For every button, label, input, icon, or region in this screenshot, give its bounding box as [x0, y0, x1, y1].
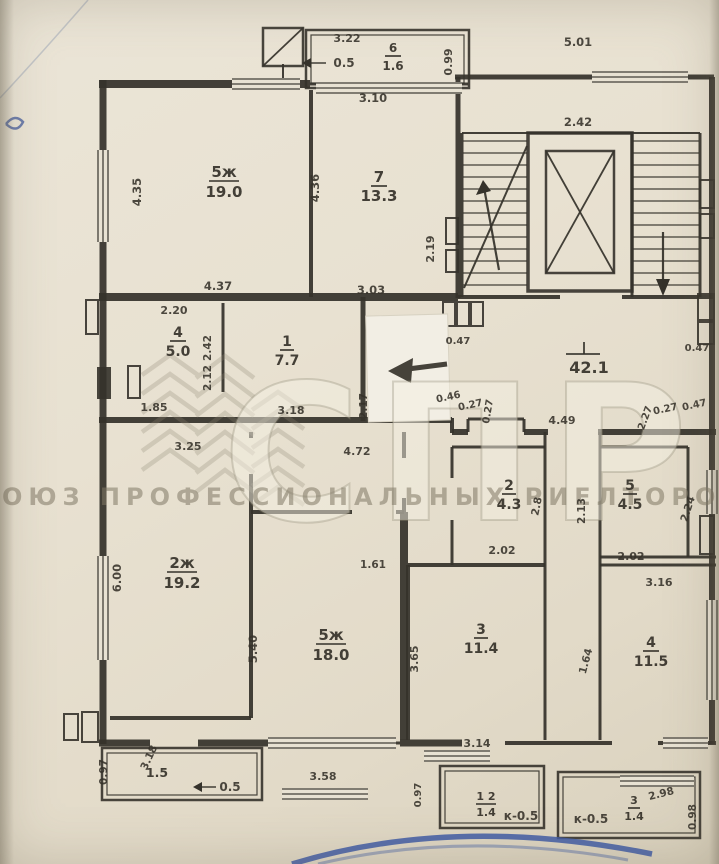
wall-line — [263, 28, 303, 66]
dimension-label: 3.18 — [277, 404, 304, 417]
room-number: 6 — [389, 41, 397, 55]
plan-rect — [86, 300, 98, 334]
dimension-label: 2.42 — [564, 115, 592, 129]
dimension-label: 2.13 — [576, 498, 588, 524]
dimension-label: 0.47 — [446, 336, 471, 347]
dimension-label: 2.42 — [202, 335, 214, 361]
dimension-label: 3.03 — [357, 283, 385, 297]
stamp-arc — [292, 836, 652, 864]
room-area: 7.7 — [275, 353, 300, 369]
dimension-label: 0.5 — [219, 780, 240, 794]
room-area: 1.6 — [382, 59, 403, 73]
pen-crease-mark — [0, 0, 88, 98]
dimension-label: 3.25 — [174, 440, 201, 453]
dimension-label: 6.00 — [110, 564, 124, 592]
room-number: 1 2 — [476, 790, 495, 803]
dimension-label: 3.16 — [645, 576, 672, 589]
room-area: 42.1 — [569, 358, 608, 377]
room-number: 5ж — [211, 163, 236, 181]
room-area: 13.3 — [360, 187, 397, 205]
room-area: 1.4 — [476, 806, 496, 819]
dimension-label: 3.58 — [309, 770, 336, 783]
dimension-label: 4.72 — [343, 445, 370, 458]
room-number: 5 — [625, 478, 635, 494]
room-area: 11.5 — [634, 654, 669, 670]
coef-arrow — [193, 782, 202, 792]
room-number: 2 — [504, 478, 514, 494]
stair-up-arrow — [476, 180, 491, 195]
room-number: 7 — [374, 168, 384, 186]
stair-down-arrow — [656, 279, 670, 296]
dimension-label: 2.20 — [160, 304, 187, 317]
dimension-label: к-0.5 — [574, 812, 608, 826]
room-number: 3 — [630, 794, 638, 807]
plan-rect — [471, 302, 483, 326]
room-number: 4 — [646, 635, 656, 651]
plan-rect — [98, 368, 110, 398]
dimension-label: 3.10 — [359, 91, 387, 105]
room-area: 19.2 — [163, 574, 200, 592]
dimension-label: 4.37 — [204, 279, 232, 293]
room-area: 19.0 — [205, 183, 242, 201]
dimension-label: 5.01 — [564, 35, 592, 49]
watermark-caption: СОЮЗ ПРОФЕССИОНАЛЬНЫХ РИЕЛТОРОВ — [0, 483, 719, 511]
dimension-label: 1.85 — [140, 401, 167, 414]
dimension-label: 0.98 — [687, 804, 699, 830]
dimension-label: 3.65 — [408, 645, 421, 672]
pen-check-mark — [6, 118, 23, 129]
dimension-label: 2.02 — [488, 544, 515, 557]
dimension-label: 1.64 — [577, 647, 595, 675]
plan-rect — [82, 712, 98, 742]
dimension-label: 2.17 — [358, 393, 370, 419]
dimension-label: 0.47 — [685, 343, 710, 354]
watermark-letters: СПР — [222, 344, 702, 565]
room-area: 4.5 — [618, 497, 643, 513]
room-area: 11.4 — [464, 641, 499, 657]
room-area: 1.4 — [624, 810, 644, 823]
room-number: 2ж — [169, 554, 194, 572]
wall-line — [483, 182, 499, 270]
dimension-label: 1.61 — [360, 559, 386, 571]
dimension-label: 5.40 — [246, 635, 260, 663]
dimension-label: к-0.5 — [504, 809, 538, 823]
dimension-label: 2.02 — [617, 550, 644, 563]
dimension-label: 0.97 — [413, 783, 424, 808]
room-area: 4.3 — [497, 497, 522, 513]
dimension-label: 0.5 — [333, 56, 354, 70]
room-area: 5.0 — [166, 344, 191, 360]
logo-chevron — [142, 450, 198, 470]
room-area: 1.5 — [146, 765, 168, 780]
plan-rect — [128, 366, 140, 398]
dimension-label: 2.98 — [647, 785, 675, 803]
room-number: 4 — [173, 325, 183, 341]
dimension-label: 3.22 — [333, 32, 360, 45]
wall-line — [464, 146, 527, 288]
room-number: 1 — [282, 334, 292, 350]
dimension-label: 3.14 — [463, 737, 490, 750]
plan-rect — [64, 714, 78, 740]
dimension-label: 4.49 — [548, 414, 575, 427]
scanned-floor-plan: СПР СОЮЗ ПРОФЕССИОНАЛЬНЫХ РИЕЛТОРОВ 3.22… — [0, 0, 719, 864]
dimension-label: 4.36 — [308, 174, 322, 202]
room-number: 5ж — [318, 626, 343, 644]
dimension-label: 2.12 — [202, 365, 214, 391]
dimension-label: 4.35 — [130, 178, 144, 206]
floor-plan-svg: СПР СОЮЗ ПРОФЕССИОНАЛЬНЫХ РИЕЛТОРОВ 3.22… — [0, 0, 719, 864]
dimension-label: 0.97 — [98, 759, 110, 785]
dimension-label: 0.99 — [442, 48, 455, 75]
dimension-label: 2.19 — [424, 235, 437, 262]
plan-rect — [457, 302, 469, 326]
room-area: 18.0 — [312, 646, 349, 664]
room-number: 3 — [476, 622, 486, 638]
